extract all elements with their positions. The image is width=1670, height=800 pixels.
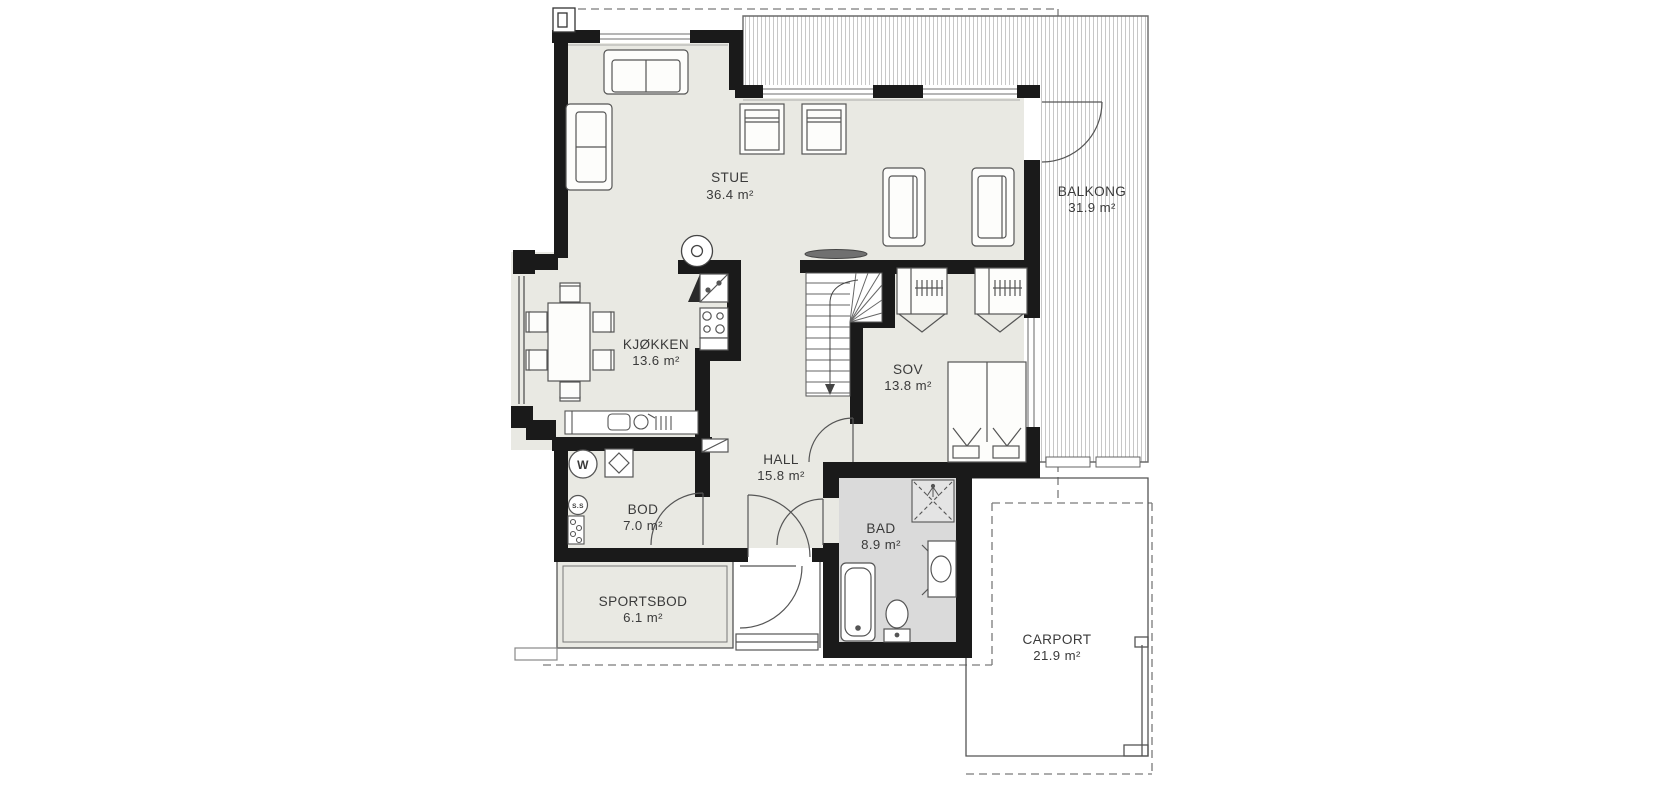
stove-icon [700, 308, 728, 350]
label-stue: STUE [711, 170, 749, 185]
bathtub-icon [841, 563, 875, 641]
water-heater-icon: S.S [569, 496, 588, 515]
label-hall: HALL [763, 452, 799, 467]
area-sportsbod: 6.1 m² [623, 610, 663, 625]
label-sov: SOV [893, 362, 923, 377]
washing-machine-icon: W [569, 450, 597, 478]
label-bod: BOD [628, 502, 659, 517]
double-bed-icon [948, 362, 1026, 462]
area-bad: 8.9 m² [861, 537, 901, 552]
label-kjokken: KJØKKEN [623, 337, 689, 352]
kitchen-counter-sink-icon [565, 411, 698, 434]
area-balkong: 31.9 m² [1068, 200, 1116, 215]
floor-plan-canvas: W S.S STUE 36 [0, 0, 1670, 800]
sofa-3seat-icon [604, 50, 688, 94]
label-bad: BAD [866, 521, 895, 536]
area-bod: 7.0 m² [623, 518, 663, 533]
sofa-2seat-icon [566, 104, 612, 190]
dresser-icon [740, 104, 784, 154]
window-stue-1 [763, 85, 873, 98]
area-sov: 13.8 m² [884, 378, 932, 393]
label-balkong: BALKONG [1058, 184, 1127, 199]
area-stue: 36.4 m² [706, 187, 754, 202]
armchair-icon [883, 168, 925, 246]
window-top-left [600, 30, 690, 43]
cabinet-icon [568, 516, 584, 544]
label-carport: CARPORT [1022, 632, 1091, 647]
ventilation-unit-icon [605, 449, 633, 477]
armchair-icon [972, 168, 1014, 246]
porch-door [740, 566, 802, 628]
label-sportsbod: SPORTSBOD [599, 594, 688, 609]
chimney [553, 8, 575, 32]
area-kjokken: 13.6 m² [632, 353, 680, 368]
floorplan-page: W S.S STUE 36 [0, 0, 1670, 800]
area-hall: 15.8 m² [757, 468, 805, 483]
window-stue-2 [923, 85, 1017, 98]
toilet-icon [884, 600, 910, 642]
shower-icon [912, 480, 954, 522]
area-carport: 21.9 m² [1033, 648, 1081, 663]
sideboard-icon [805, 250, 867, 259]
carport-outline [966, 478, 1148, 756]
water-heater-label: S.S [572, 503, 584, 510]
hatch-threshold [702, 439, 728, 452]
washer-label: W [577, 458, 589, 472]
fireplace-icon [682, 236, 713, 267]
dresser-icon [802, 104, 846, 154]
